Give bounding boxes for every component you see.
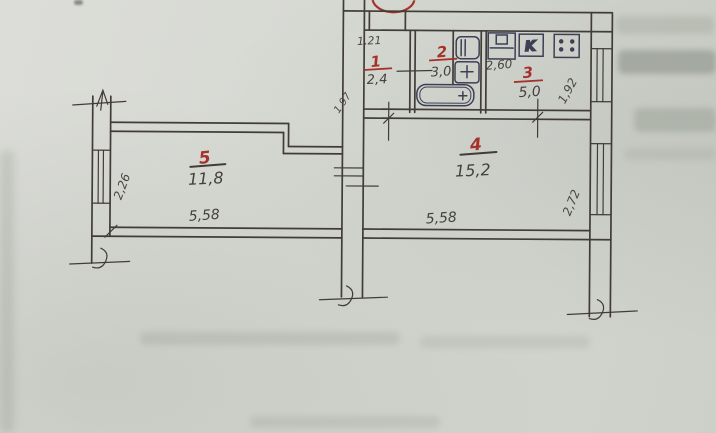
room-5-area: 11,8 [188,168,224,189]
dim-hall-left: 1,97 [332,90,354,115]
room-1-area: 2,4 [366,72,387,88]
labels: 1.21 1 2,4 1,97 2 3,0 2,60 3 5,0 1,92 4 … [111,32,584,229]
axis-hook-bottom-center [338,286,352,306]
axis-marks [69,90,639,320]
washbasin-icon [455,62,479,83]
bathtub-icon [417,84,474,105]
axis-hook-bottom-right [589,300,603,320]
room5-window [92,150,110,203]
dim-room4-bottom: 5,58 [425,210,457,228]
dim-room1-top: 1.21 [357,34,382,48]
room-4-area: 15,2 [455,160,491,181]
dim-room5-left: 2,26 [111,171,134,201]
water-heater-letter: K [524,38,537,55]
floor-plan-drawing: K 1.21 1 2,4 1,97 2 [0,0,716,433]
dim-kitchen-fixtures: 2,60 [485,57,513,73]
axis-arrow-top-left [97,90,108,110]
axis-hook-bottom-left [93,248,107,268]
scanned-floor-plan-page: K 1.21 1 2,4 1,97 2 [0,0,716,433]
room-5-number: 5 [198,148,212,169]
room4-window [590,144,611,215]
kitchen-window [591,49,612,102]
room-1-number: 1 [370,52,382,71]
room-2-area: 3,0 [430,64,452,80]
room-3-area: 5,0 [518,84,541,101]
dim-kitchen-right: 1,92 [555,76,580,106]
room-4-number: 4 [468,135,483,156]
room-3-number: 3 [522,63,534,82]
kitchen-sink-icon [488,33,515,59]
dim-room5-bottom: 5,58 [188,207,220,225]
toilet-icon [456,37,479,59]
water-heater-icon: K [519,34,543,56]
top-wall-band [343,11,612,32]
dim-room4-right: 2,72 [560,188,583,218]
room-2-number: 2 [436,43,448,62]
gas-stove-icon [554,34,579,57]
